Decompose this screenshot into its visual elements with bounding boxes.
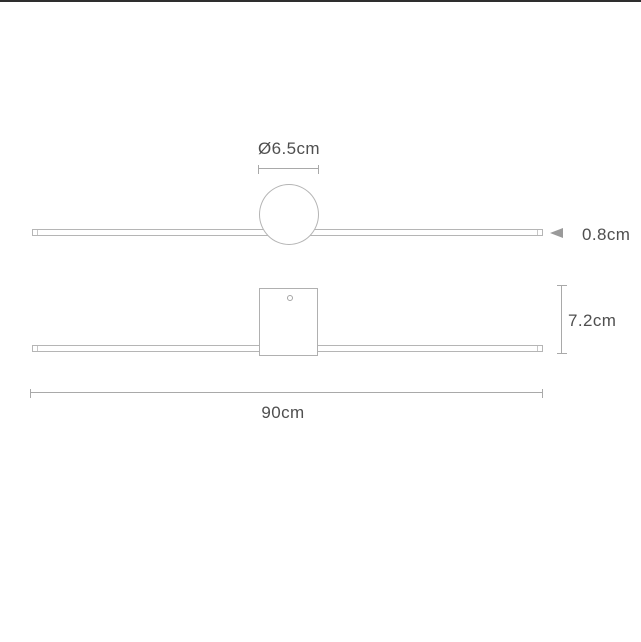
thickness-arrow-icon	[550, 228, 563, 238]
diameter-dimension-line	[258, 168, 319, 169]
width-dimension-label: 90cm	[232, 403, 334, 423]
height-dimension-label: 7.2cm	[568, 311, 616, 331]
width-dimension-line	[30, 392, 543, 393]
top-border-line	[0, 0, 641, 2]
lamp-head-circle	[259, 184, 319, 245]
thickness-dimension-label: 0.8cm	[582, 225, 630, 245]
dimension-diagram: Ø6.5cm 0.8cm 7.2cm 90cm	[0, 0, 641, 642]
screw-hole-circle	[287, 295, 293, 301]
wall-mount-square	[259, 288, 318, 356]
diameter-dimension-label: Ø6.5cm	[238, 139, 340, 159]
height-dimension-line	[561, 285, 562, 354]
